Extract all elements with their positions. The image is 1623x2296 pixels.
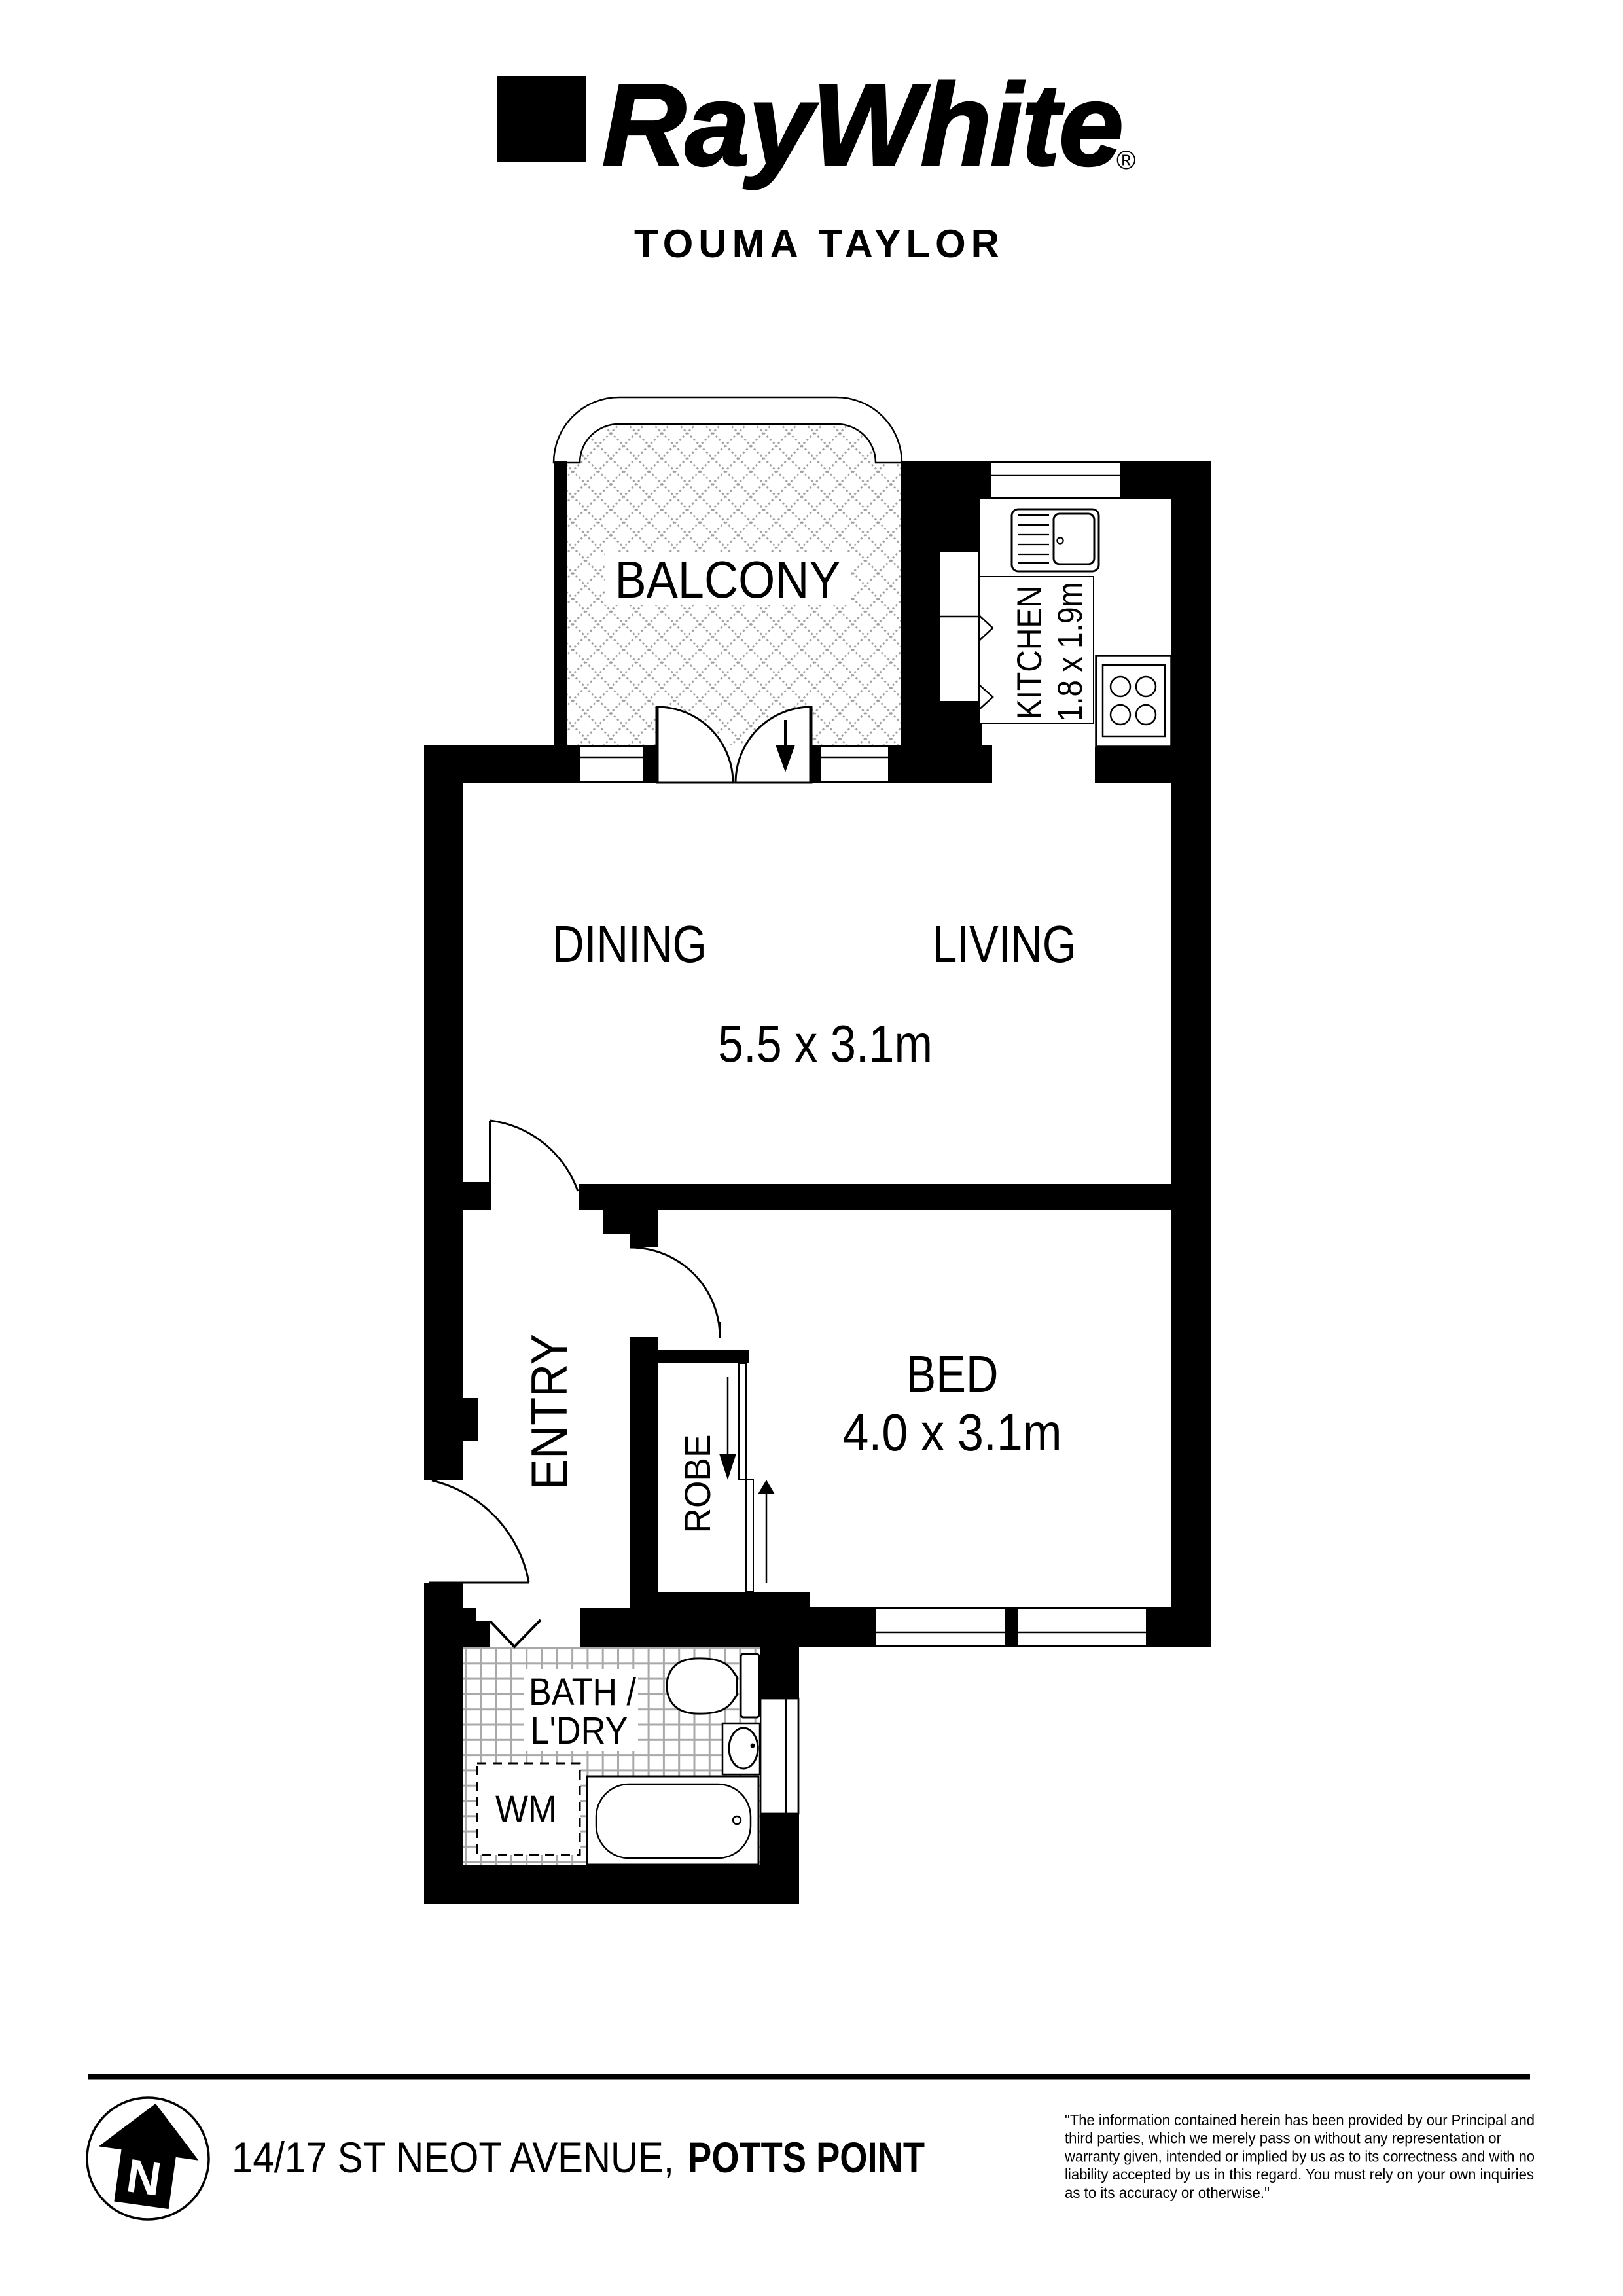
svg-text:POTTS POINT: POTTS POINT [688,2133,925,2181]
svg-text:ENTRY: ENTRY [520,1334,578,1490]
svg-text:14/17 ST NEOT AVENUE,: 14/17 ST NEOT AVENUE, [232,2133,674,2181]
svg-text:4.0 x 3.1m: 4.0 x 3.1m [843,1403,1062,1462]
svg-text:WM: WM [495,1788,557,1831]
svg-text:as to its accuracy or otherwis: as to its accuracy or otherwise." [1065,2184,1270,2201]
svg-text:warranty given, intended or im: warranty given, intended or implied by u… [1064,2147,1535,2164]
svg-text:BED: BED [906,1345,999,1403]
svg-text:DINING: DINING [552,915,707,973]
svg-text:L'DRY: L'DRY [531,1710,628,1752]
svg-text:RayWhite: RayWhite [602,60,1122,190]
svg-text:BATH /: BATH / [529,1671,637,1713]
svg-text:third parties, which we merely: third parties, which we merely pass on w… [1065,2130,1501,2147]
svg-text:"The information contained her: "The information contained herein has be… [1065,2111,1535,2128]
svg-text:KITCHEN: KITCHEN [1010,586,1049,719]
svg-text:5.5 x 3.1m: 5.5 x 3.1m [718,1014,933,1073]
svg-text:TOUMA TAYLOR: TOUMA TAYLOR [634,222,1005,266]
svg-text:®: ® [1116,146,1135,175]
svg-text:N: N [124,2149,165,2206]
svg-text:LIVING: LIVING [933,915,1077,973]
svg-text:BALCONY: BALCONY [615,550,841,609]
svg-text:1.8 x 1.9m: 1.8 x 1.9m [1051,583,1090,722]
svg-text:liability accepted by us in th: liability accepted by us in this regard.… [1065,2166,1534,2183]
svg-text:ROBE: ROBE [677,1435,718,1534]
